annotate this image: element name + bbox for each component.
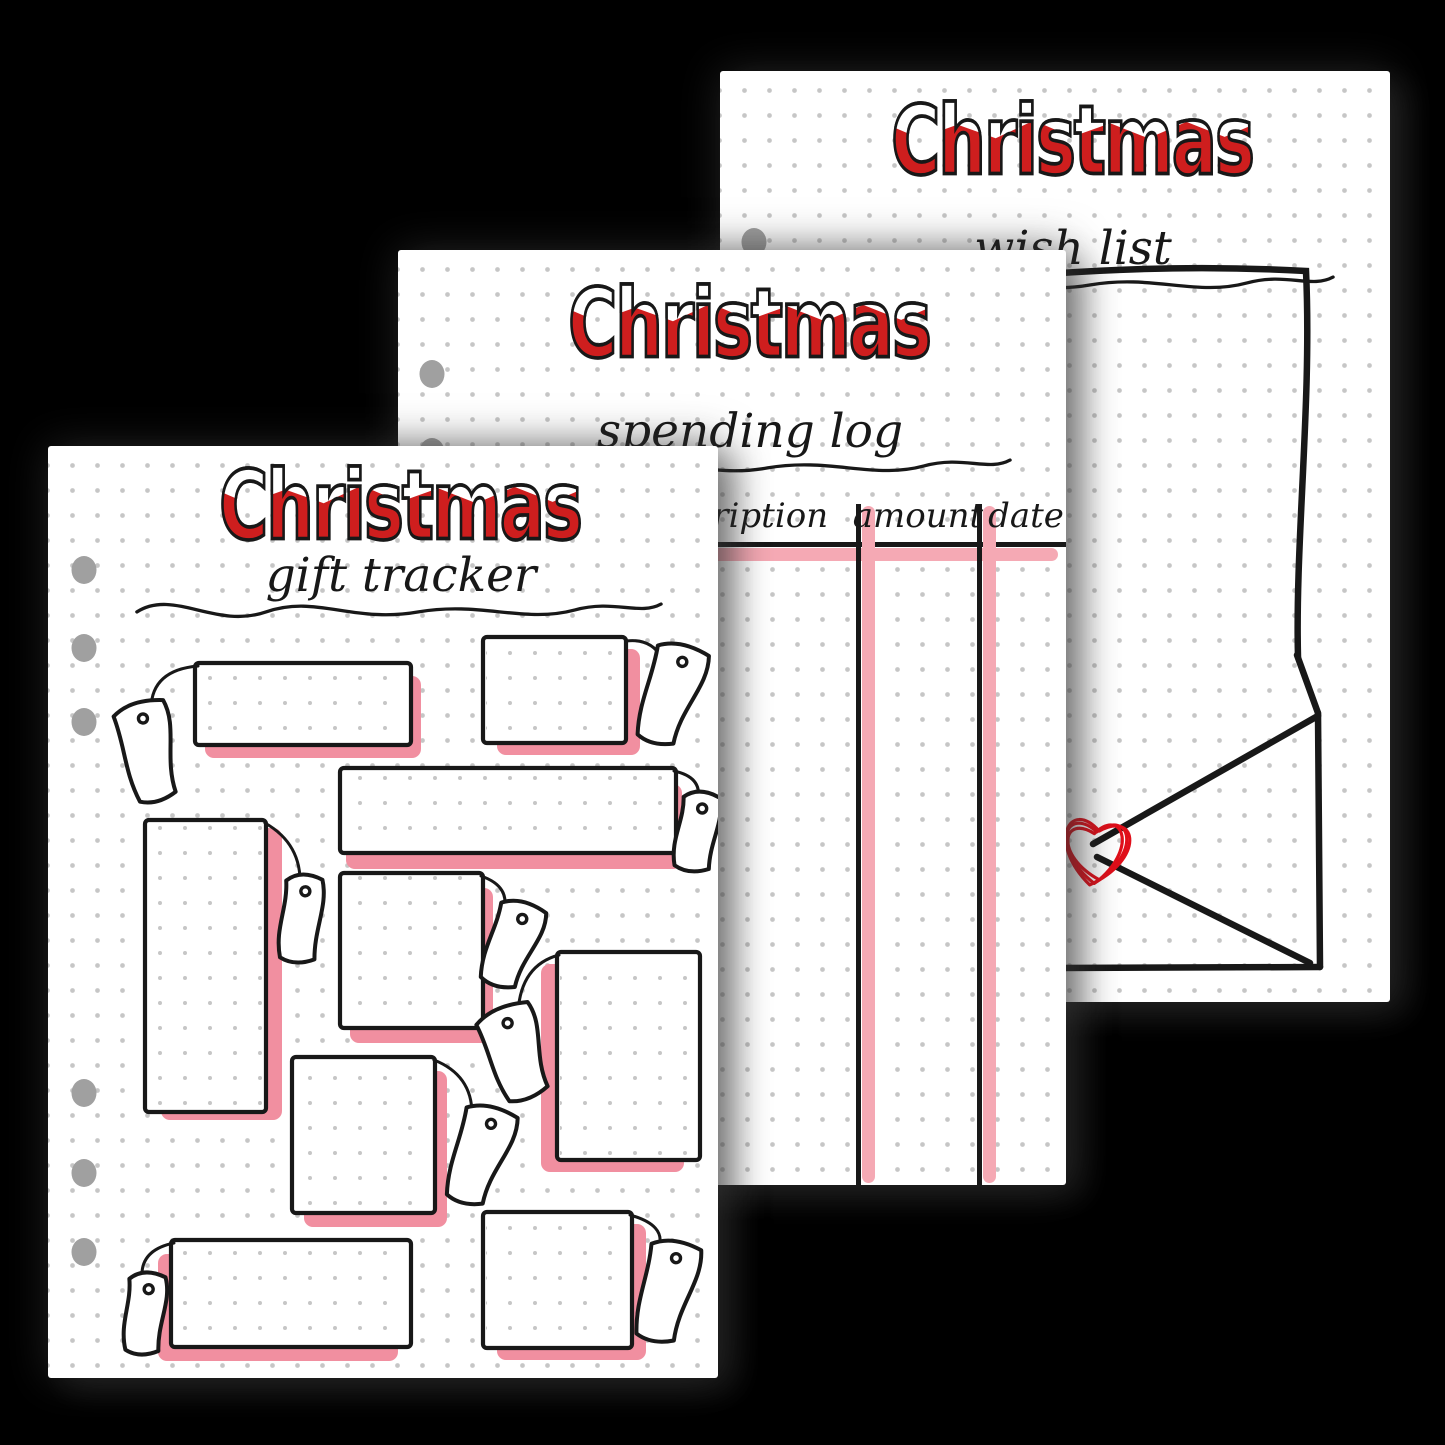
envelope-line: [1097, 857, 1310, 963]
gift-box-dots: [560, 955, 697, 1157]
heart-scribble-icon: [1058, 817, 1132, 890]
table-column-header-amount: amount: [853, 496, 983, 536]
gift-tag: [112, 696, 189, 806]
tag-hole: [697, 803, 707, 813]
table-column-divider: [977, 504, 982, 1185]
gift-box-dots: [343, 771, 673, 850]
gift-box-dots: [198, 666, 408, 742]
tag-hole: [517, 913, 528, 924]
envelope-line: [1093, 717, 1316, 844]
gift-box-dots: [486, 640, 623, 740]
tag-hole: [300, 886, 310, 896]
envelope-line: [1318, 713, 1320, 967]
table-column-header-date: date: [988, 496, 1064, 536]
gift-tag: [441, 1100, 520, 1211]
gift-box-dots: [148, 823, 263, 1109]
subtitle-script: gift tracker: [48, 544, 718, 608]
envelope-line: [1058, 967, 1320, 968]
gift-box-dots: [486, 1215, 629, 1345]
gift-box-dots: [343, 876, 480, 1025]
table-column-pink-highlight: [983, 506, 996, 1183]
tag-hole: [502, 1017, 514, 1029]
gift-tag: [632, 638, 712, 751]
letter-paper: [1046, 268, 1307, 657]
page-title: Christmas Christmas: [432, 276, 1066, 372]
gift-tag: [277, 873, 326, 965]
table-column-divider: [856, 504, 861, 1185]
tag-hole: [144, 1284, 154, 1294]
page-gift-tracker: Christmas Christmas gift tracker: [48, 446, 718, 1378]
tag-hole: [138, 713, 149, 724]
tag-hole: [671, 1253, 682, 1264]
gift-box-dots: [295, 1060, 432, 1210]
tag-hole: [485, 1118, 496, 1129]
envelope-line: [1297, 655, 1318, 713]
tag-hole: [677, 656, 688, 667]
gift-box-dots: [174, 1243, 408, 1344]
table-column-pink-highlight: [862, 506, 875, 1183]
